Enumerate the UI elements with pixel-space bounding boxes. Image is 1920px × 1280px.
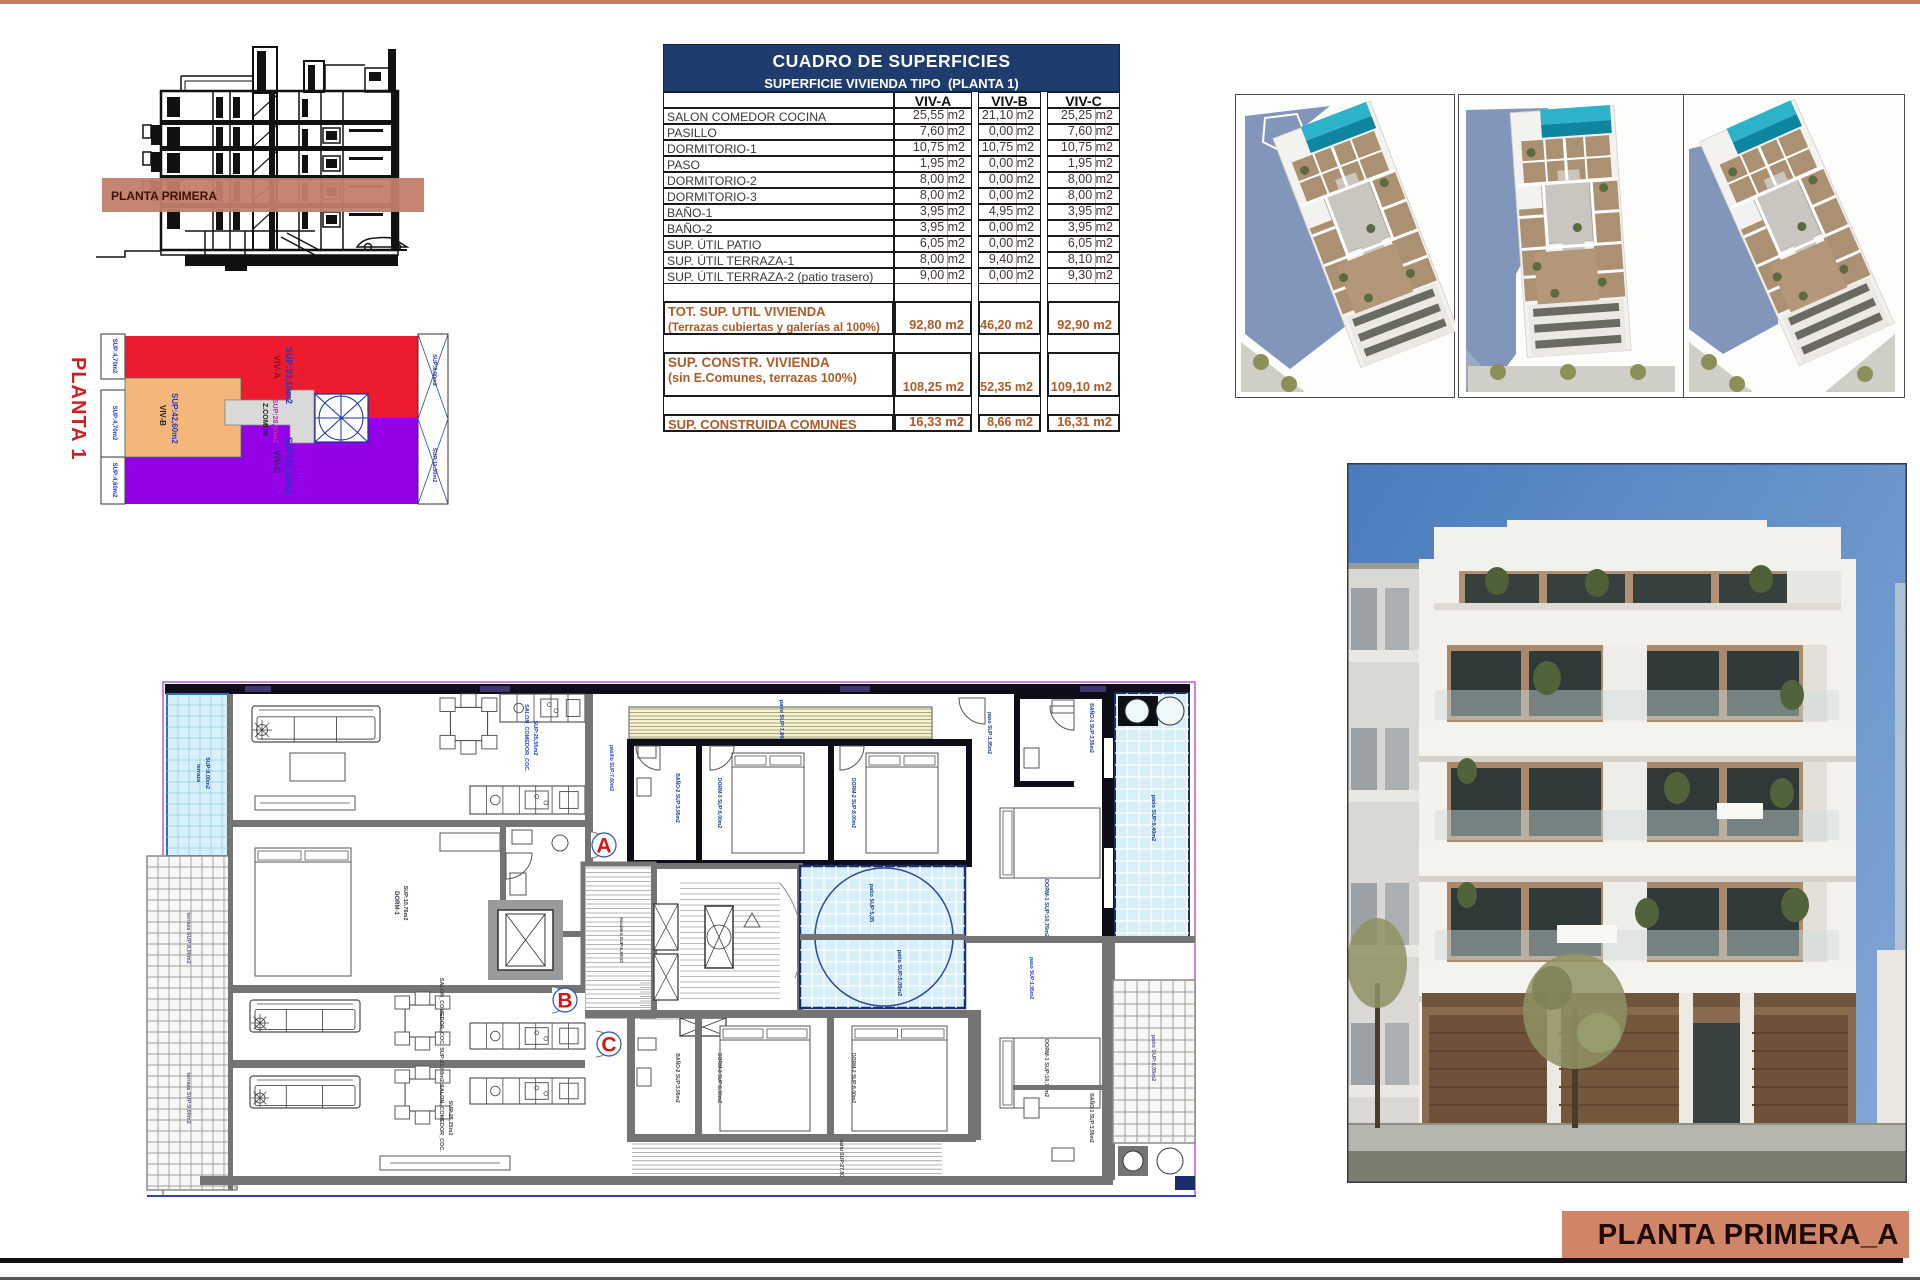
svg-text:SUP:42,60m2: SUP:42,60m2	[170, 393, 179, 444]
svg-text:patio SUP:6,05m2: patio SUP:6,05m2	[1150, 1035, 1156, 1081]
svg-text:C: C	[601, 1034, 616, 1057]
svg-text:BAÑO-1 SUP:3,95m2: BAÑO-1 SUP:3,95m2	[1088, 703, 1095, 753]
svg-text:BAÑO-2 SUP:3,95m2: BAÑO-2 SUP:3,95m2	[674, 773, 681, 823]
svg-text:pasillo SUP:7,60m2: pasillo SUP:7,60m2	[608, 745, 614, 791]
svg-text:B: B	[557, 990, 572, 1013]
svg-text:paso SUP:1,95m2: paso SUP:1,95m2	[1028, 957, 1034, 999]
svg-text:SUP:4,60m2: SUP:4,60m2	[111, 463, 117, 498]
svg-text:SALON_COMEDOR_COC. SUP:21,08m2: SALON_COMEDOR_COC. SUP:21,08m2	[438, 978, 444, 1082]
svg-text:patio SUP:5,05: patio SUP:5,05	[868, 884, 874, 923]
svg-text:SUP:93,10m2: SUP:93,10m2	[284, 347, 294, 404]
svg-text:terraza SUP:9,00m2: terraza SUP:9,00m2	[185, 1072, 191, 1123]
svg-text:A: A	[596, 835, 611, 858]
svg-text:SALON_COMEDOR_COC.: SALON_COMEDOR_COC.	[523, 704, 529, 772]
svg-text:SUP:8,00m2: SUP:8,00m2	[431, 354, 437, 386]
svg-text:BAÑO-2 SUP:3,95m2: BAÑO-2 SUP:3,95m2	[674, 1053, 681, 1103]
svg-text:Z.COMÚN: Z.COMÚN	[261, 403, 270, 436]
svg-text:VIV-A: VIV-A	[272, 355, 282, 379]
svg-text:DORM-2 SUP:8,00m2: DORM-2 SUP:8,00m2	[850, 778, 856, 828]
svg-text:terraza: terraza	[195, 764, 201, 783]
svg-text:terraza SUP:8,00m2: terraza SUP:8,00m2	[185, 912, 191, 963]
svg-text:PLANTA PRIMERA: PLANTA PRIMERA	[111, 189, 217, 203]
svg-text:BAÑO-1 SUP:3,95m2: BAÑO-1 SUP:3,95m2	[1088, 1093, 1095, 1143]
svg-text:SUP:25,25m2: SUP:25,25m2	[447, 1101, 453, 1136]
svg-text:SUP:25,55m2: SUP:25,55m2	[532, 721, 538, 756]
svg-text:SUP:10,76m2: SUP:10,76m2	[402, 886, 408, 921]
svg-text:DORM-1 SUP:10,76m2: DORM-1 SUP:10,76m2	[1043, 879, 1049, 937]
svg-text:DORM-2 SUP:8,00m2: DORM-2 SUP:8,00m2	[850, 1053, 856, 1103]
svg-text:DORM-3 SUP:8,00m2: DORM-3 SUP:8,00m2	[716, 778, 722, 828]
svg-text:SUP:11,00m2: SUP:11,00m2	[431, 448, 437, 483]
svg-text:SUP:4,70m2: SUP:4,70m2	[111, 406, 117, 441]
svg-text:VIV-C: VIV-C	[272, 450, 282, 474]
svg-text:VIV-B: VIV-B	[158, 405, 167, 426]
svg-text:DORM-3 SUP:8,00m2: DORM-3 SUP:8,00m2	[716, 1053, 722, 1103]
svg-text:SALON_COMEDOR_COC.: SALON_COMEDOR_COC.	[438, 1084, 444, 1152]
svg-text:PLANTA 1: PLANTA 1	[67, 357, 89, 461]
svg-text:SUP:4,70m2: SUP:4,70m2	[111, 339, 117, 374]
svg-text:patio SUP:5,05m2: patio SUP:5,05m2	[896, 950, 902, 996]
svg-text:SUP:93,10m2: SUP:93,10m2	[284, 437, 294, 494]
svg-text:patio SUP:9,40m2: patio SUP:9,40m2	[1150, 795, 1156, 841]
svg-text:paso SUP:1,95m2: paso SUP:1,95m2	[986, 712, 992, 754]
svg-text:escalera SUP:6,30m2: escalera SUP:6,30m2	[619, 917, 624, 963]
svg-text:DORM-1: DORM-1	[393, 891, 399, 915]
svg-text:SUP:28,90m2: SUP:28,90m2	[271, 399, 278, 443]
svg-text:patio SUP:27,80: patio SUP:27,80	[838, 1139, 844, 1177]
svg-text:SUP:8,00m2: SUP:8,00m2	[204, 757, 210, 789]
